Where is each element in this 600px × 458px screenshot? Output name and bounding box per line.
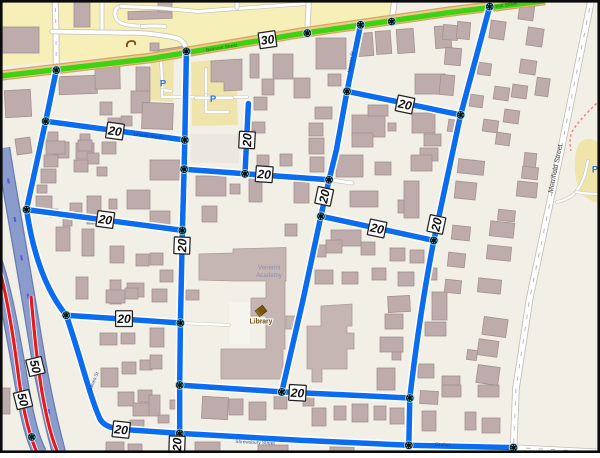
svg-text:20: 20 [240,133,255,148]
svg-text:20: 20 [175,238,190,253]
svg-text:Grafton: Grafton [435,442,451,448]
svg-text:20: 20 [97,212,114,228]
svg-text:20: 20 [428,216,445,233]
svg-text:20: 20 [289,386,304,401]
svg-text:20: 20 [256,167,272,182]
svg-text:20: 20 [170,437,185,452]
svg-text:Venerini: Venerini [258,265,280,272]
svg-text:20: 20 [106,123,123,139]
svg-text:20: 20 [396,96,413,113]
svg-text:P: P [160,79,167,90]
svg-text:Library: Library [250,319,273,326]
svg-text:20: 20 [316,188,333,205]
svg-text:30: 30 [260,32,276,48]
svg-text:Academy: Academy [256,272,283,279]
svg-text:P: P [210,94,217,105]
svg-text:20: 20 [368,220,385,237]
svg-text:20: 20 [113,422,129,437]
svg-text:20: 20 [116,312,131,326]
